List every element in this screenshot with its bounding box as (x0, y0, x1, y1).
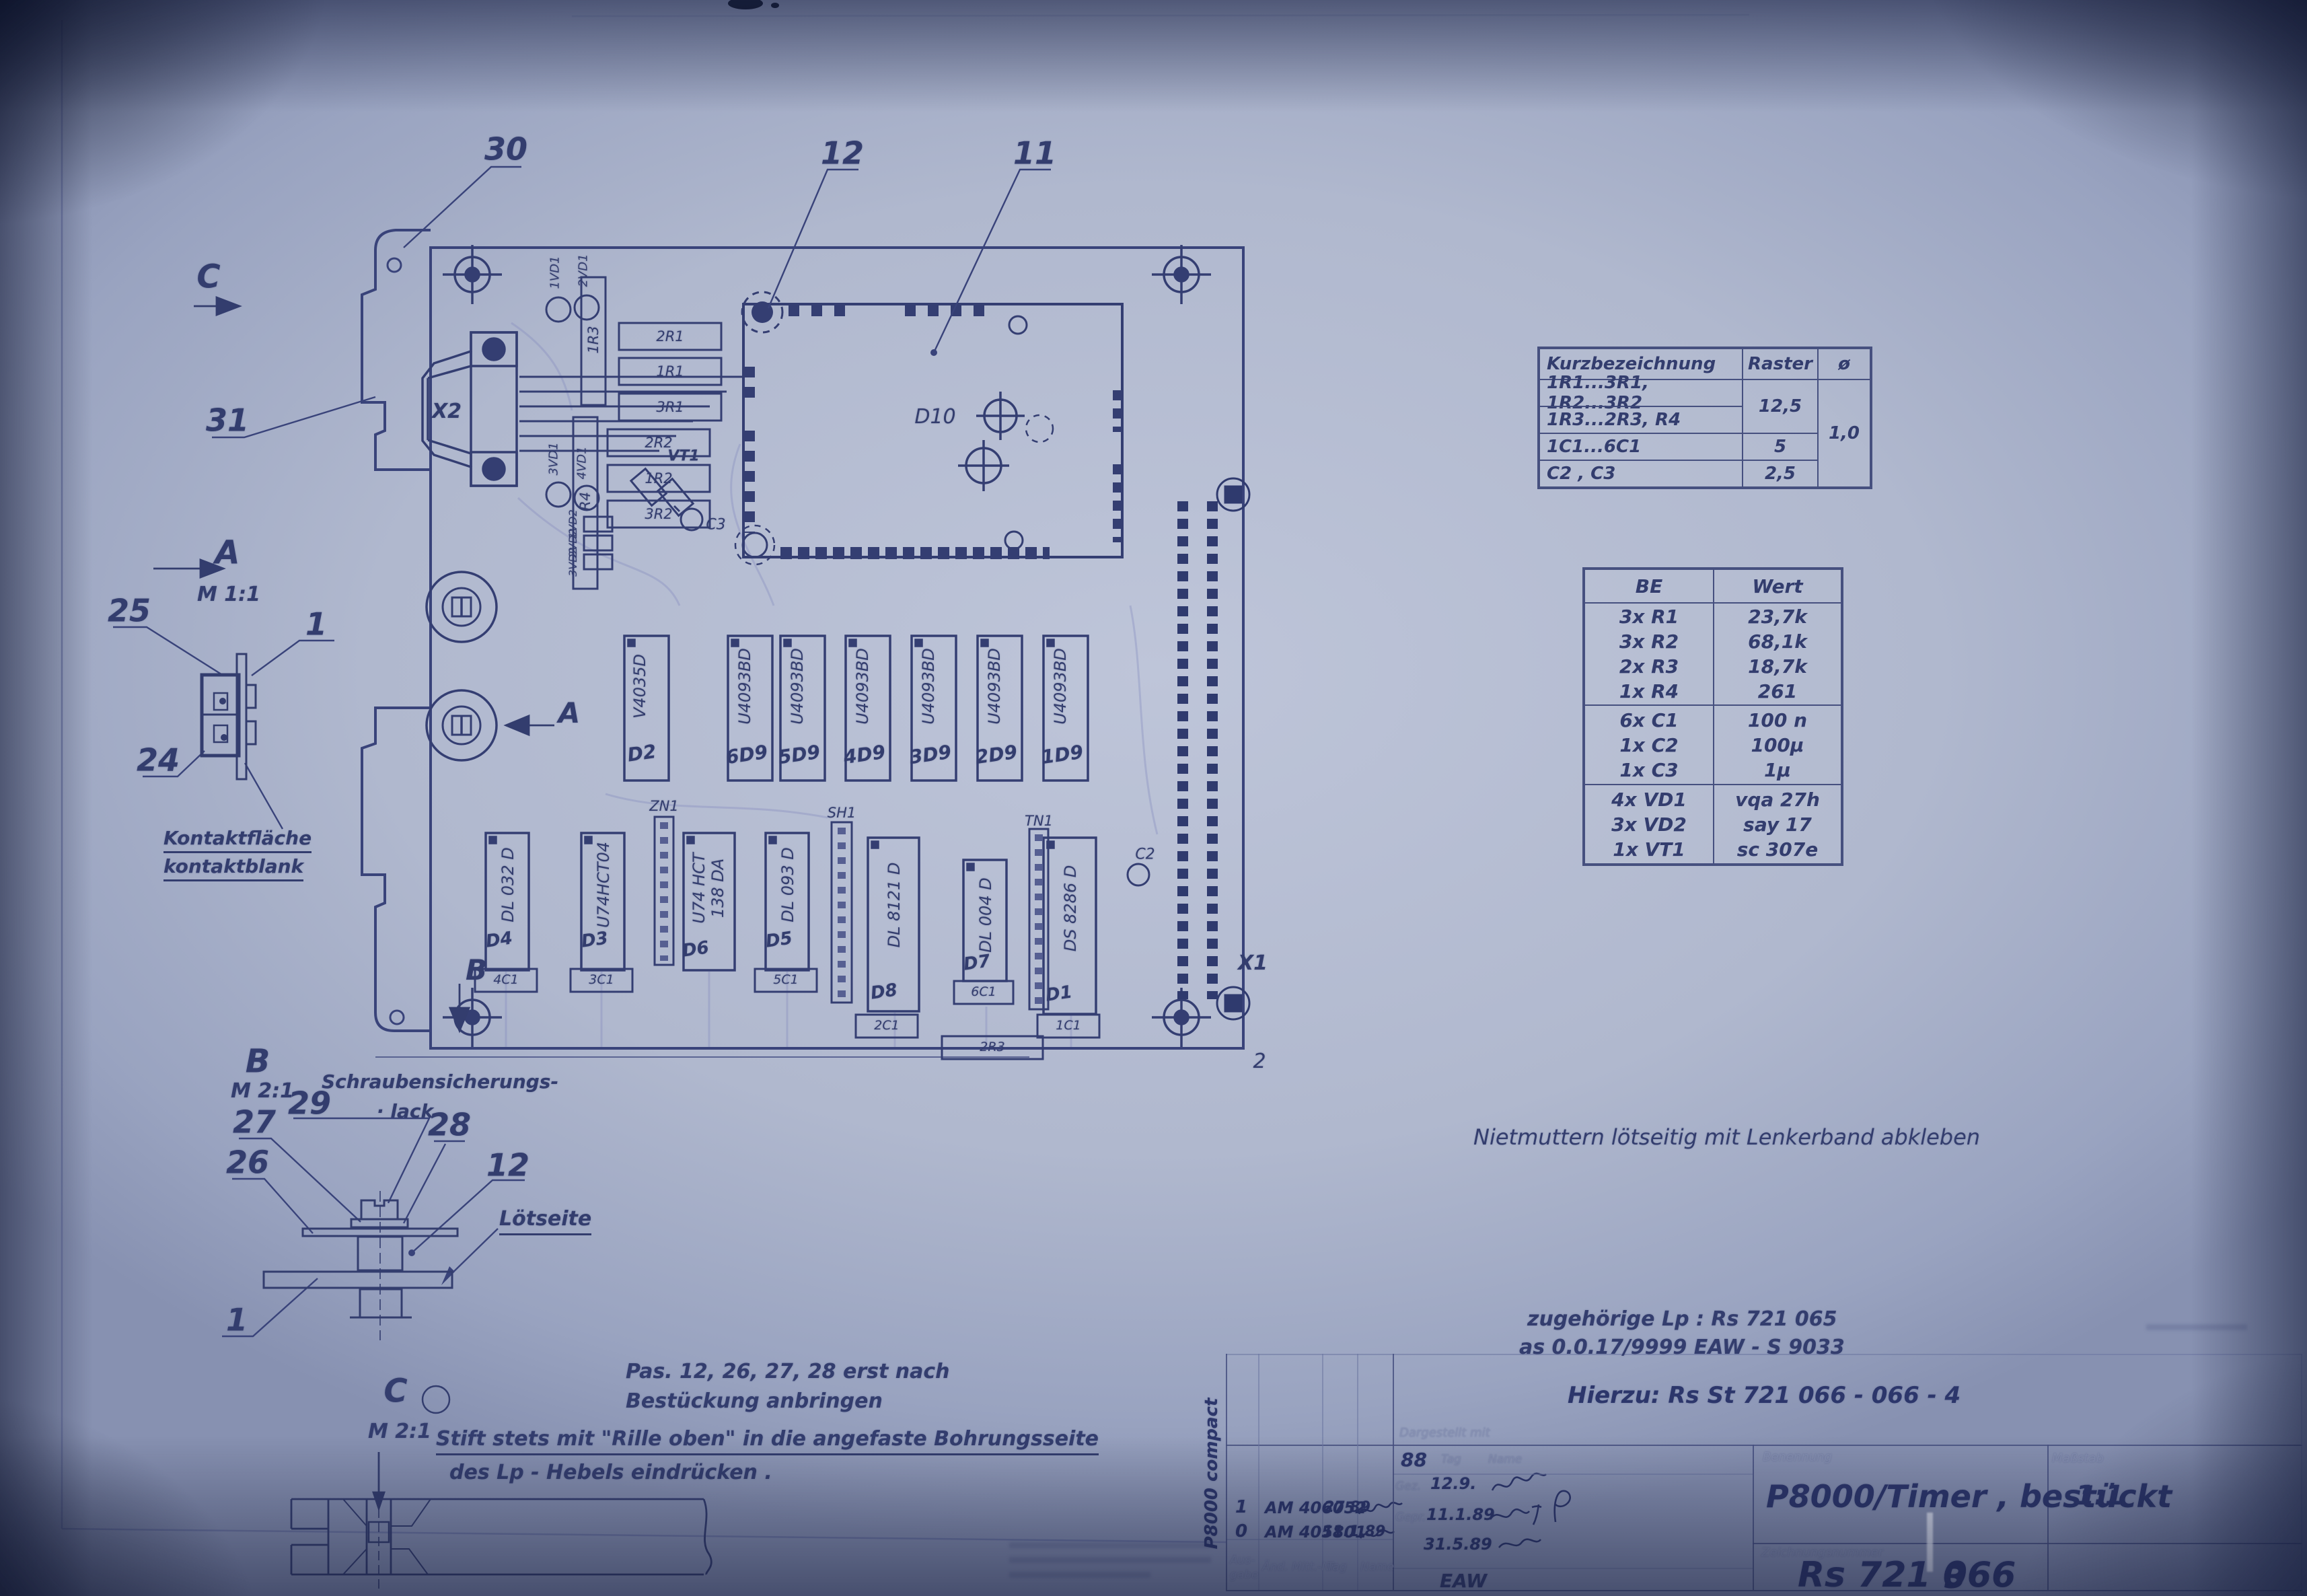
raster-row4-kurz: C2 , C3 (1539, 460, 1743, 487)
view-a-scale: M 1:1 (197, 583, 260, 607)
ic-1d9-part: U4093BD (1052, 648, 1070, 725)
ic-d3-name: D3 (580, 929, 609, 952)
res-2r1-label: 2R1 (656, 328, 684, 344)
cap-c3-label: C3 (706, 516, 725, 533)
drawing-number: Rs 721 066 (1798, 1556, 2016, 1596)
stift-note-line1: Stift stets mit "Rille oben" in die ange… (436, 1428, 1099, 1455)
blueprint-photo: 30 12 11 31 25 1 24 29 27 26 28 12 1 2 C… (0, 0, 2307, 1596)
raster-value-c: 2,5 (1743, 460, 1818, 487)
callout-26: 26 (226, 1145, 269, 1181)
massstab-value: 1:1 (2076, 1480, 2124, 1511)
be-col2-header: Wert (1714, 569, 1841, 603)
raster-col2-header: Raster (1743, 349, 1818, 379)
ic-3d9-part: U4093BD (920, 648, 939, 725)
frame-side-label: P8000 compact (1202, 1398, 1222, 1550)
diode-3vd2-label: 3VD2 (567, 547, 579, 577)
callout-27: 27 (233, 1105, 276, 1140)
titleblock-vline-4 (1357, 1354, 1358, 1590)
massstab-label: Maßstab (2052, 1452, 2104, 1466)
revision-1-date: 27 89 (1324, 1499, 1370, 1516)
rivet-nuts (427, 572, 497, 760)
row-gepr-label: Gepr. (1395, 1511, 1426, 1525)
stamp-hline-2 (1393, 1568, 1753, 1569)
discrete-components (546, 277, 1149, 885)
illegible-corner-text (2146, 1324, 2247, 1339)
raster-value-a: 12,5 (1743, 379, 1818, 433)
ic-4d9-part: U4093BD (854, 648, 873, 725)
date-gepr-value: 11.1.89 (1426, 1506, 1495, 1525)
x1-label: X1 (1238, 952, 1268, 976)
nietmuttern-note: Nietmuttern lötseitig mit Lenkerband abk… (1473, 1125, 1980, 1150)
strip-zn1-label: ZN1 (649, 798, 678, 814)
ic-d6-name: D6 (681, 938, 710, 962)
cap-4c1-label: 4C1 (493, 973, 518, 988)
diode-1vd1-label: 1VD1 (549, 256, 563, 289)
x1-connector (1183, 478, 1249, 1019)
section-c-detail (291, 1480, 711, 1593)
section-b-screw (264, 1191, 457, 1340)
raster-row2-kurz: 1R3...2R3, R4 (1539, 406, 1743, 433)
section-c-label: C (383, 1373, 407, 1410)
x2-label: X2 (432, 400, 462, 424)
strip-tn1-label: TN1 (1025, 813, 1053, 829)
section-b-scale: M 2:1 (231, 1080, 294, 1103)
col-name-label: Name (1360, 1561, 1394, 1574)
callout-2: 2 (1253, 1050, 1266, 1074)
cap-5c1-label: 5C1 (773, 973, 798, 988)
titleblock-vline-7 (2047, 1445, 2049, 1590)
titleblock-vline-5 (1393, 1354, 1394, 1590)
raster-diameter: 1,0 (1818, 379, 1870, 487)
col-ausgabe-label-1: Aus- (1230, 1554, 1255, 1568)
res-1r2-label: 1R2 (645, 470, 672, 486)
ic-d2-part: V4035D (631, 654, 650, 719)
stamp-name-header: Name (1488, 1453, 1522, 1467)
revision-0-number: 0 (1235, 1522, 1247, 1542)
diode-2vd1-label: 2VD1 (577, 254, 591, 287)
be-group3-names: 4x VD13x VD2 1x VT1 (1584, 785, 1714, 864)
zugehoerige-note-line1: zugehörige Lp : Rs 721 065 (1527, 1308, 1837, 1332)
cap-2c1-label: 2C1 (874, 1019, 899, 1033)
pas-note-line2: Bestückung anbringen (626, 1390, 883, 1414)
diode-3vd1-label: 3VD1 (548, 442, 562, 475)
board-b-arrow-label: B (466, 954, 487, 986)
callout-1b: 1 (226, 1303, 248, 1338)
ic-d1-name: D1 (1044, 982, 1073, 1006)
kontaktflaeche-note-2: kontaktblank (163, 856, 303, 881)
photo-artifact-streak (1927, 1513, 1933, 1572)
titleblock-vline-3 (1322, 1354, 1323, 1590)
be-group2-names: 6x C11x C2 1x C3 (1584, 705, 1714, 785)
raster-value-b: 5 (1743, 433, 1818, 460)
view-c-label: C (196, 258, 220, 295)
ic-d5-part: DL 093 D (779, 847, 798, 922)
col-tag-label: Tag (1327, 1561, 1347, 1574)
callout-25: 25 (108, 593, 151, 629)
loetseite-note: Lötseite (499, 1208, 591, 1235)
schraubensicherung-note-2: · lack (377, 1101, 433, 1122)
callout-28: 28 (428, 1108, 471, 1143)
ic-d7-part: DL 004 D (977, 877, 996, 952)
callout-24: 24 (137, 743, 180, 778)
illegible-fine-print (1009, 1542, 1211, 1587)
col-ausgabe-label-2: gabe (1230, 1569, 1258, 1583)
callout-12b: 12 (486, 1148, 529, 1184)
ic-d5-name: D5 (764, 929, 793, 952)
dargestellt-label: Dargestellt mit (1399, 1426, 1490, 1441)
zugehoerige-note-line2: as 0.0.17/9999 EAW - S 9033 (1519, 1336, 1845, 1360)
callout-12: 12 (821, 136, 864, 172)
view-a-label: A (215, 534, 240, 571)
raster-table: Kurzbezeichnung Raster ø 1R1...3R1, 1R2.… (1537, 347, 1872, 489)
res-3r1-label: 3R1 (656, 399, 684, 415)
be-group1-names: 3x R13x R2 2x R31x R4 (1584, 603, 1714, 705)
callout-1: 1 (305, 607, 327, 643)
d10-label: D10 (914, 406, 955, 429)
titleblock-vline-1 (1226, 1354, 1227, 1590)
titleblock-hline-1 (1226, 1445, 2302, 1446)
ic-d2-name: D2 (626, 741, 658, 766)
callout-11: 11 (1013, 136, 1056, 172)
stamp-tag-header: Tag (1441, 1453, 1461, 1467)
photo-artifact-blob-small (771, 3, 779, 8)
date-third-value: 31.5.89 (1424, 1535, 1492, 1554)
transistor-vt1-label: VT1 (667, 447, 699, 464)
strip-sh1-label: SH1 (828, 805, 856, 821)
res-1r3-label: 1R3 (585, 326, 601, 353)
ic-6d9-part: U4093BD (736, 648, 755, 725)
cap-6c1-label: 6C1 (971, 985, 996, 1000)
benennung-label: Benennung (1763, 1451, 1832, 1465)
raster-col3-header: ø (1818, 349, 1870, 379)
cap-c2-label: C2 (1135, 846, 1155, 863)
revision-0-date: 11.1.89 (1323, 1523, 1385, 1540)
raster-row3-kurz: 1C1...6C1 (1539, 433, 1743, 460)
kontaktflaeche-note-1: Kontaktfläche (163, 828, 312, 853)
res-r4-label: R4 (577, 492, 593, 511)
be-group1-values: 23,7k68,1k 18,7k261 (1714, 603, 1841, 705)
ic-d4-part: DL 032 D (499, 847, 518, 922)
sheet-border (62, 15, 1749, 1542)
year-value: 88 (1401, 1449, 1427, 1471)
ic-d7-name: D7 (962, 951, 991, 975)
hierzu-note: Hierzu: Rs St 721 066 - 066 - 4 (1568, 1383, 1961, 1409)
callout-30: 30 (484, 132, 527, 168)
board-a-arrow-label: A (558, 697, 581, 729)
ic-2d9-part: U4093BD (986, 648, 1004, 725)
ic-d1-part: DS 8286 D (1062, 865, 1081, 952)
res-3r2-label: 3R2 (645, 506, 672, 522)
callout-31: 31 (206, 403, 249, 439)
schraubensicherung-note-1: Schraubensicherungs- (322, 1071, 558, 1093)
titleblock-vline-8 (2301, 1354, 2302, 1590)
ic-d6-part2: 138 DA (709, 859, 728, 918)
drawing-line-art (0, 0, 2307, 1596)
ic-d3-part: U74HCT04 (595, 842, 614, 928)
ic-d8-name: D8 (869, 980, 898, 1004)
revision-1-number: 1 (1235, 1498, 1247, 1518)
date-gez-value: 12.9. (1430, 1475, 1476, 1494)
pas-note-line1: Pas. 12, 26, 27, 28 erst nach (626, 1361, 950, 1384)
stift-note-line2: des Lp - Hebels eindrücken . (449, 1461, 772, 1485)
diode-4vd1-label: 4VD1 (576, 446, 590, 479)
titleblock-vline-6 (1753, 1445, 1754, 1590)
be-group3-values: vqa 27hsay 17 sc 307e (1714, 785, 1841, 864)
contact-detail (202, 654, 256, 779)
be-col1-header: BE (1584, 569, 1714, 603)
be-group2-values: 100 n100µ 1µ (1714, 705, 1841, 785)
org-label: EAW (1440, 1570, 1487, 1592)
section-b-label: B (246, 1043, 270, 1080)
cap-1c1-label: 1C1 (1056, 1019, 1081, 1033)
ic-d4-name: D4 (484, 929, 513, 952)
ic-5d9-part: U4093BD (789, 648, 807, 725)
row-gez-label: Gez. (1395, 1480, 1421, 1494)
cap-3c1-label: 3C1 (589, 973, 614, 988)
section-c-scale: M 2:1 (368, 1420, 431, 1444)
res-2r3-label: 2R3 (980, 1040, 1004, 1055)
sheet-number: 3 (1944, 1560, 1966, 1595)
ic-d8-part: DL 8121 D (885, 863, 904, 948)
titleblock-vline-2 (1258, 1354, 1259, 1590)
be-wert-table: BE Wert 3x R13x R2 2x R31x R4 23,7k68,1k… (1582, 567, 1843, 866)
ic-d6-part: U74 HCT (690, 853, 709, 923)
titleblock-bottom-line (1226, 1590, 2302, 1591)
raster-row1-kurz: 1R1...3R1, 1R2...3R2 (1539, 379, 1743, 406)
titleblock-hline-2 (1753, 1543, 2302, 1544)
res-1r1-label: 1R1 (656, 363, 684, 379)
